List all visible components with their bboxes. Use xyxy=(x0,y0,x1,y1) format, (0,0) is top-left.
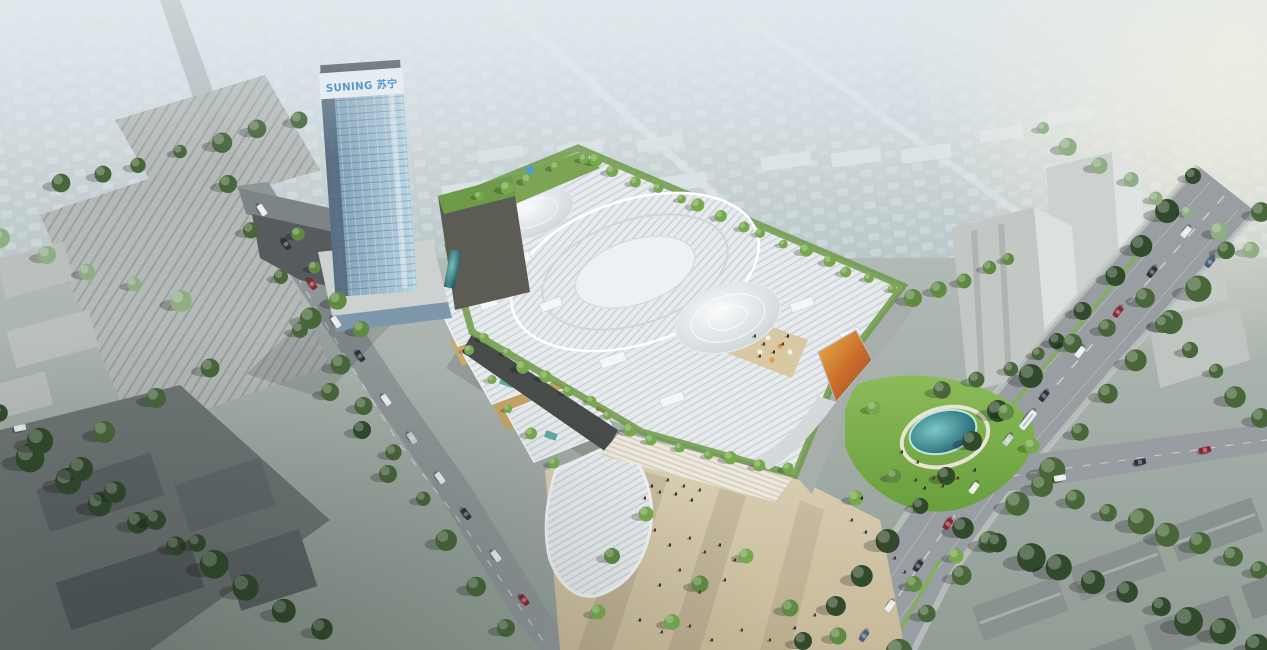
aerial-rendering-canvas: Aerial architectural rendering of a larg… xyxy=(0,0,1267,650)
aerial-rendering: Aerial architectural rendering of a larg… xyxy=(0,0,1267,650)
atmosphere-haze xyxy=(0,0,1267,160)
